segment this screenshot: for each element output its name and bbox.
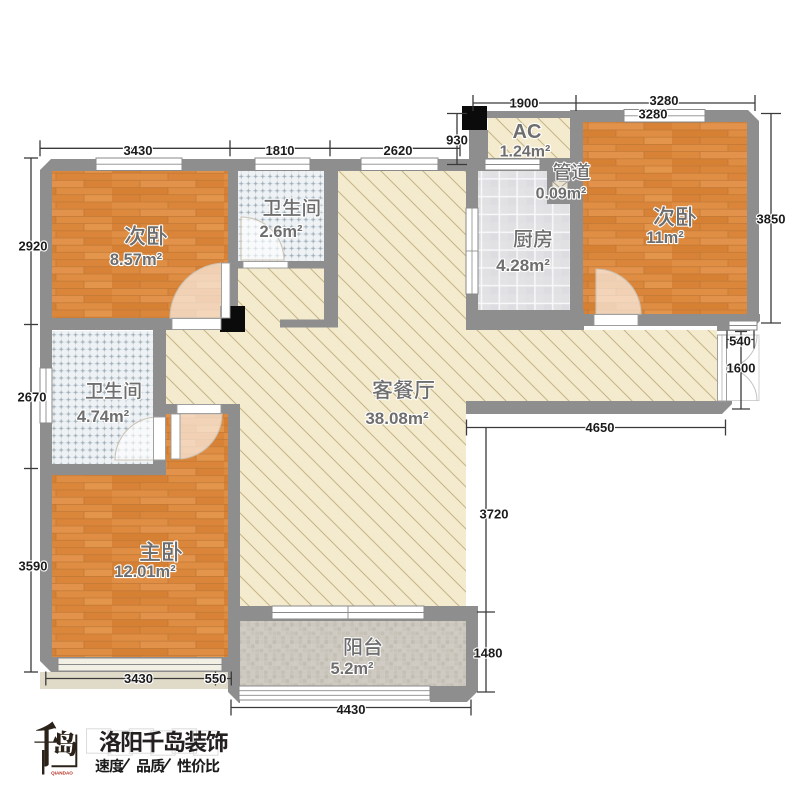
svg-text:550: 550 xyxy=(205,671,227,686)
svg-text:38.08m²: 38.08m² xyxy=(365,409,429,428)
svg-text:5.2m²: 5.2m² xyxy=(330,660,374,678)
svg-text:540: 540 xyxy=(729,334,751,349)
svg-text:8.57m²: 8.57m² xyxy=(110,251,163,269)
svg-text:2920: 2920 xyxy=(19,239,48,254)
svg-text:930: 930 xyxy=(446,133,468,148)
svg-text:3430: 3430 xyxy=(124,671,153,686)
svg-text:0.09m²: 0.09m² xyxy=(536,186,587,203)
svg-text:4.74m²: 4.74m² xyxy=(77,408,130,426)
svg-text:1600: 1600 xyxy=(727,361,756,376)
svg-text:3850: 3850 xyxy=(757,212,786,227)
svg-text:4.28m²: 4.28m² xyxy=(496,256,550,275)
svg-text:4430: 4430 xyxy=(337,702,366,717)
svg-text:12.01m²: 12.01m² xyxy=(114,563,176,581)
svg-text:3430: 3430 xyxy=(124,143,153,158)
svg-text:3590: 3590 xyxy=(19,559,48,574)
svg-text:1810: 1810 xyxy=(266,143,295,158)
svg-text:2620: 2620 xyxy=(384,143,413,158)
svg-text:4650: 4650 xyxy=(586,420,615,435)
svg-text:11m²: 11m² xyxy=(646,229,684,247)
svg-text:1900: 1900 xyxy=(510,96,539,111)
svg-text:3280: 3280 xyxy=(639,107,668,122)
svg-text:AC: AC xyxy=(513,121,542,143)
svg-text:2.6m²: 2.6m² xyxy=(259,223,303,241)
svg-text:1.24m²: 1.24m² xyxy=(500,144,551,161)
svg-text:1480: 1480 xyxy=(474,646,503,661)
svg-text:3720: 3720 xyxy=(480,507,509,522)
svg-text:QIANDAO: QIANDAO xyxy=(51,770,73,775)
svg-text:2670: 2670 xyxy=(18,390,47,405)
